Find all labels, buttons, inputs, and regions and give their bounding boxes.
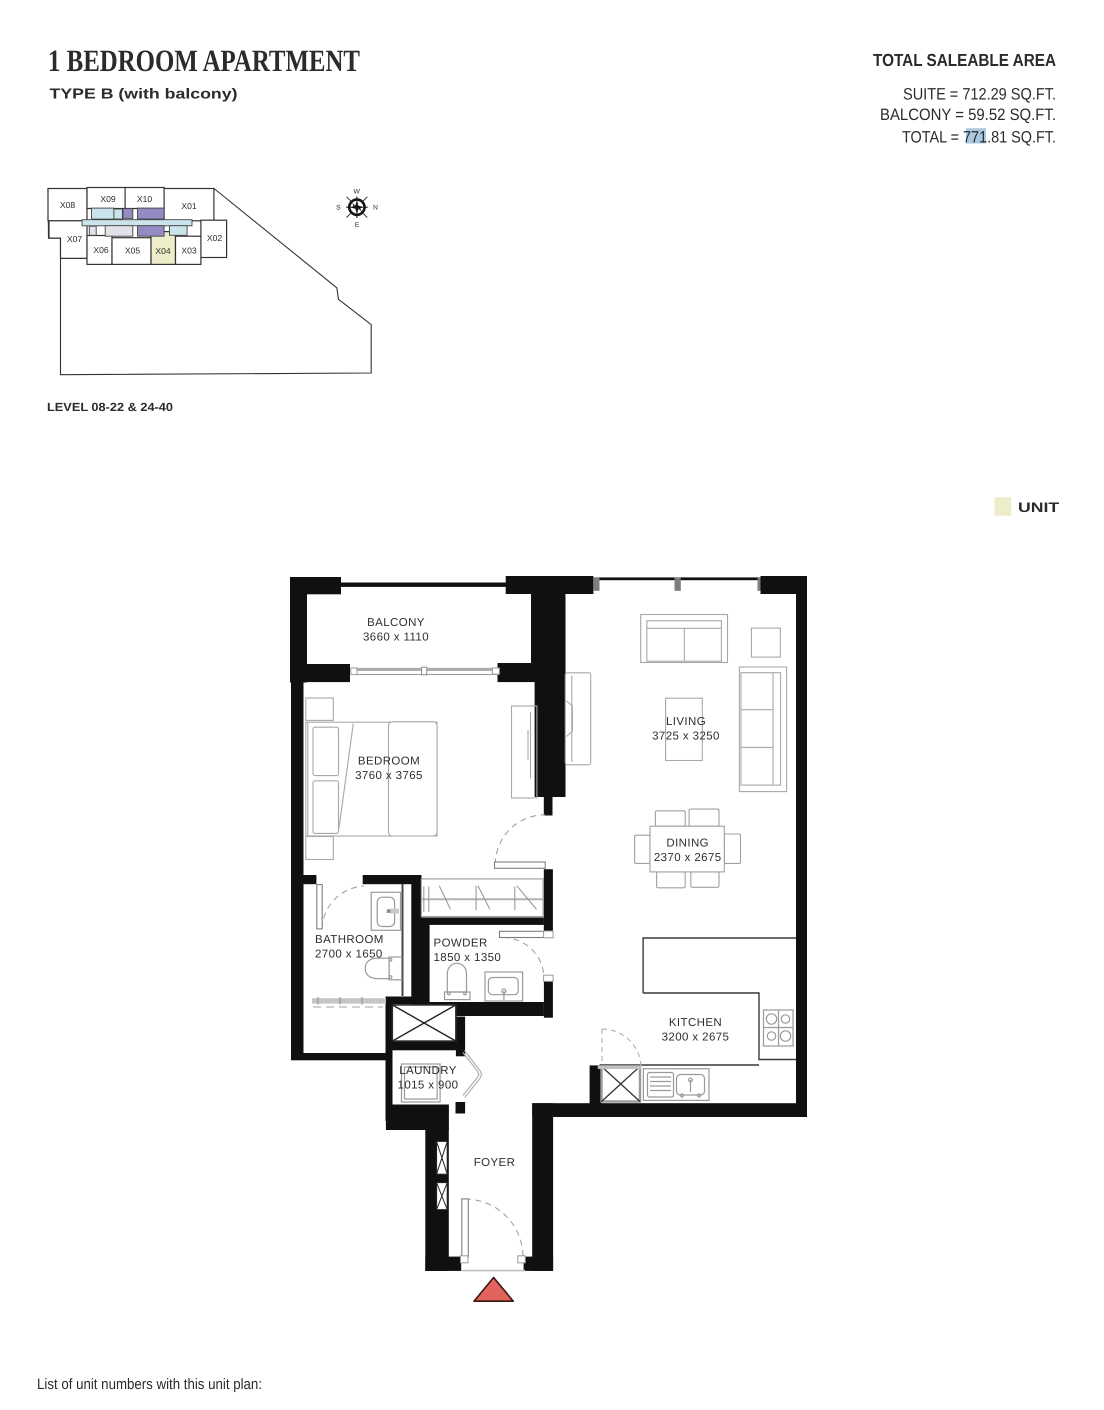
svg-text:LAUNDRY: LAUNDRY [399, 1065, 457, 1077]
svg-text:UNIT: UNIT [1018, 500, 1060, 515]
svg-text:BALCONY: BALCONY [367, 617, 425, 629]
svg-text:LIVING: LIVING [666, 716, 706, 728]
svg-text:X07: X07 [67, 234, 83, 244]
svg-text:X01: X01 [181, 201, 197, 211]
svg-text:X05: X05 [125, 246, 141, 256]
svg-text:BEDROOM: BEDROOM [358, 756, 420, 768]
svg-text:FOYER: FOYER [474, 1157, 516, 1169]
svg-text:TYPE B (with balcony): TYPE B (with balcony) [50, 87, 238, 103]
svg-text:BALCONY = 59.52 SQ.FT.: BALCONY = 59.52 SQ.FT. [880, 106, 1056, 124]
svg-text:X08: X08 [60, 200, 76, 210]
svg-text:LEVEL 08-22 & 24-40: LEVEL 08-22 & 24-40 [47, 400, 173, 414]
svg-text:1015 x 900: 1015 x 900 [398, 1080, 459, 1092]
svg-text:E: E [355, 222, 360, 229]
svg-text:2700 x 1650: 2700 x 1650 [315, 949, 383, 961]
svg-text:TOTAL SALEABLE AREA: TOTAL SALEABLE AREA [873, 50, 1056, 70]
svg-text:S: S [336, 205, 341, 212]
svg-text:3725 x 3250: 3725 x 3250 [652, 731, 720, 743]
svg-text:BATHROOM: BATHROOM [315, 934, 384, 946]
svg-text:SUITE = 712.29 SQ.FT.: SUITE = 712.29 SQ.FT. [903, 86, 1056, 104]
svg-text:N: N [373, 205, 378, 212]
svg-text:W: W [353, 189, 360, 196]
svg-text:3660 x 1110: 3660 x 1110 [363, 632, 429, 644]
svg-text:X04: X04 [155, 246, 171, 256]
svg-text:KITCHEN: KITCHEN [669, 1017, 722, 1029]
svg-text:X10: X10 [137, 194, 153, 204]
svg-text:2370 x 2675: 2370 x 2675 [654, 852, 722, 864]
svg-text:List of unit numbers with this: List of unit numbers with this unit plan… [37, 1376, 262, 1393]
svg-text:TOTAL = 771.81 SQ.FT.: TOTAL = 771.81 SQ.FT. [902, 129, 1056, 147]
svg-text:X03: X03 [181, 246, 197, 256]
svg-text:POWDER: POWDER [434, 938, 488, 950]
svg-text:X09: X09 [100, 194, 116, 204]
svg-text:X06: X06 [93, 245, 109, 255]
svg-text:3760 x 3765: 3760 x 3765 [355, 770, 423, 782]
svg-text:3200 x 2675: 3200 x 2675 [662, 1032, 730, 1044]
svg-text:X02: X02 [207, 233, 223, 243]
svg-text:1850 x 1350: 1850 x 1350 [434, 952, 502, 964]
svg-text:DINING: DINING [666, 838, 709, 850]
svg-text:1 BEDROOM APARTMENT: 1 BEDROOM APARTMENT [48, 43, 360, 78]
